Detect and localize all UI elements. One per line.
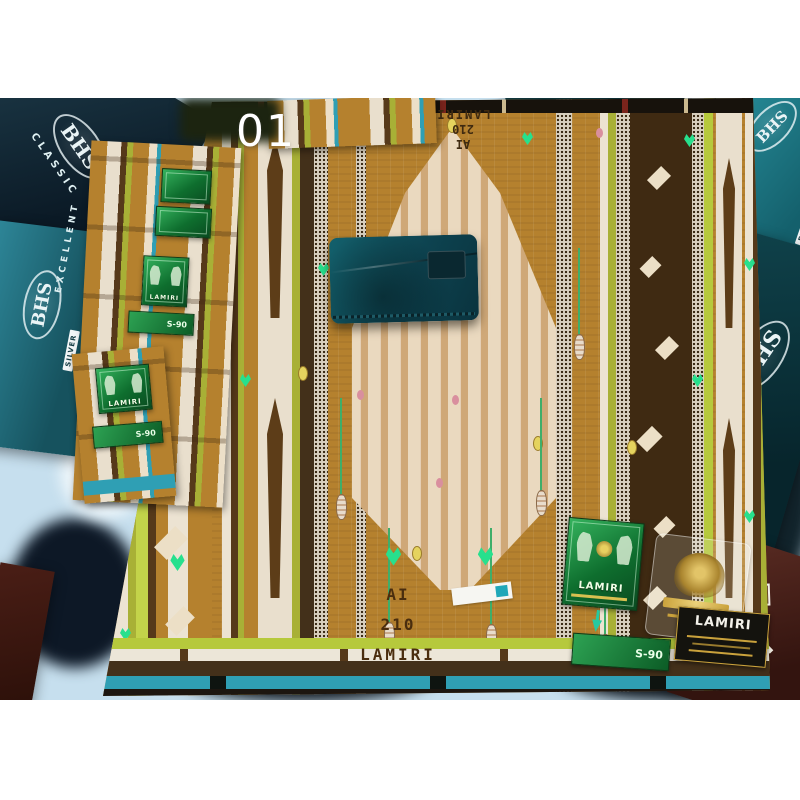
ikat-motif (647, 166, 671, 190)
photo-canvas: BHS CLASSIC BHS EXCELLENT SILVER BHS (0, 0, 800, 800)
spear-motif (267, 398, 283, 598)
spear-motif (723, 158, 735, 328)
product-photo: BHS CLASSIC BHS EXCELLENT SILVER BHS (0, 98, 800, 700)
woven-text-bottom: AI 210 LAMIRI (348, 580, 448, 670)
pink-motif (596, 128, 603, 138)
arrow-column-left (258, 98, 292, 700)
yellow-motif (412, 546, 422, 561)
brand-text: BHS (753, 107, 792, 147)
green-label-large: LAMIRI (561, 517, 644, 611)
size-label: S-90 (92, 421, 164, 449)
size-label: S-90 (128, 310, 195, 335)
ikat-texture-band (556, 98, 572, 700)
excellent-chip: EXCELLENT (795, 186, 800, 247)
green-label: LAMIRI (141, 255, 190, 307)
yellow-motif (627, 440, 637, 455)
ikat-motif (636, 426, 662, 452)
candle-motif (574, 334, 585, 360)
photo-number: 01 (236, 106, 296, 157)
label-crest (159, 210, 208, 234)
pink-motif (436, 478, 443, 488)
stripe-olive (292, 98, 300, 700)
candle-motif (340, 398, 342, 508)
label-title: LAMIRI (678, 612, 769, 635)
green-tulip-motif (522, 132, 533, 145)
pouch-zipper (333, 312, 475, 319)
label-gold-rule (689, 649, 753, 657)
black-label: LAMIRI (674, 606, 770, 668)
stripe-teal (90, 676, 780, 689)
pink-motif (452, 395, 459, 405)
yellow-motif (298, 366, 308, 381)
ikat-texture-band (314, 98, 328, 700)
gold-crest-icon (672, 550, 727, 600)
spear-motif (267, 138, 283, 318)
woven-line: AI (348, 580, 448, 610)
stripe-teal (83, 474, 176, 496)
label-gold-rule (692, 642, 750, 649)
woven-line: 210 (348, 610, 448, 640)
green-label (155, 206, 212, 239)
stripe-brown (300, 98, 314, 700)
woven-line: LAMIRI (348, 640, 448, 670)
folded-pile-bottom-left: LAMIRI S-90 (72, 346, 177, 503)
ikat-motif (640, 256, 662, 278)
candle-motif (536, 490, 547, 516)
pouch (329, 234, 479, 324)
label-crest (165, 172, 208, 200)
label-gold-rule (687, 635, 757, 643)
size-label-large: S-90 (571, 633, 671, 672)
candle-motif (578, 248, 580, 348)
pouch-label-patch (427, 250, 466, 279)
size-text: S-90 (167, 319, 188, 329)
price-tag-mark (495, 585, 508, 597)
pink-motif (357, 390, 364, 400)
ikat-motif (655, 336, 679, 360)
size-text: S-90 (635, 647, 664, 662)
green-label (160, 168, 212, 205)
candle-motif (336, 494, 347, 520)
stripe-olive (608, 98, 616, 700)
size-text: S-90 (135, 428, 156, 439)
green-label: LAMIRI (95, 364, 153, 415)
